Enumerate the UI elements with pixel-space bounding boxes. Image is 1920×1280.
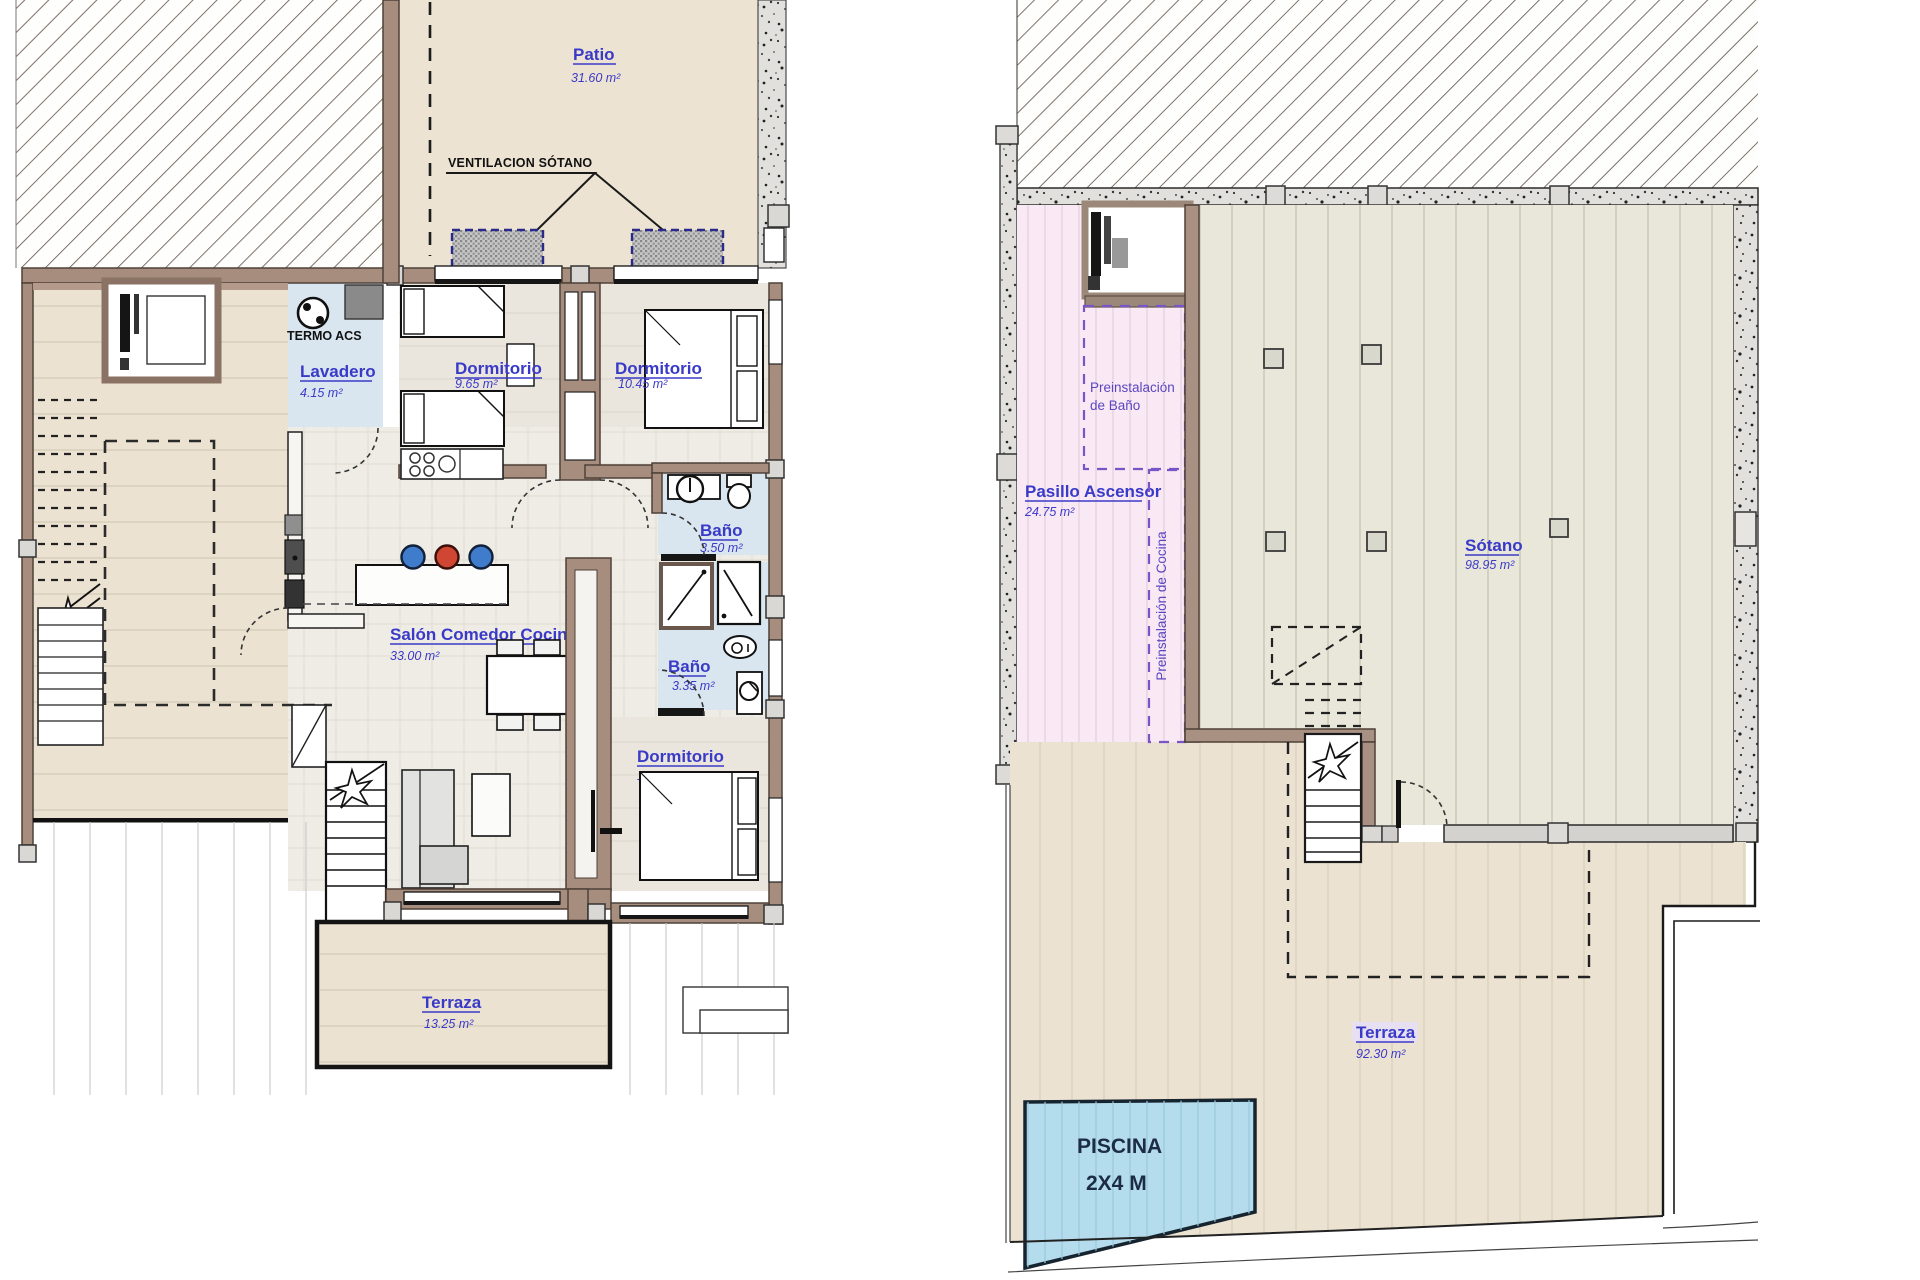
svg-text:13.25 m²: 13.25 m²: [424, 1017, 474, 1031]
svg-text:3.35 m²: 3.35 m²: [672, 679, 715, 693]
svg-text:de Baño: de Baño: [1090, 398, 1140, 413]
svg-text:Dormitorio: Dormitorio: [615, 359, 702, 378]
svg-text:3.50 m²: 3.50 m²: [700, 541, 743, 555]
svg-text:31.60 m²: 31.60 m²: [571, 71, 621, 85]
svg-text:2X4 M: 2X4 M: [1086, 1172, 1147, 1195]
svg-text:4.15 m²: 4.15 m²: [300, 386, 343, 400]
svg-text:33.00 m²: 33.00 m²: [390, 649, 440, 663]
svg-text:Lavadero: Lavadero: [300, 362, 376, 381]
svg-text:Terraza: Terraza: [1356, 1023, 1416, 1042]
svg-text:Dormitorio: Dormitorio: [455, 359, 542, 378]
svg-text:Dormitorio: Dormitorio: [637, 747, 724, 766]
svg-text:Terraza: Terraza: [422, 993, 482, 1012]
svg-text:10.45 m²: 10.45 m²: [618, 377, 668, 391]
svg-text:VENTILACION SÓTANO: VENTILACION SÓTANO: [448, 155, 592, 170]
svg-text:Sótano: Sótano: [1465, 536, 1523, 555]
svg-text:Preinstalación: Preinstalación: [1090, 380, 1175, 395]
svg-text:Pasillo Ascensor: Pasillo Ascensor: [1025, 482, 1162, 501]
svg-text:Baño: Baño: [700, 521, 743, 540]
svg-text:9.65 m²: 9.65 m²: [455, 377, 498, 391]
svg-text:TERMO ACS: TERMO ACS: [287, 329, 362, 343]
svg-text:24.75 m²: 24.75 m²: [1024, 505, 1075, 519]
svg-text:Patio: Patio: [573, 45, 615, 64]
svg-text:98.95 m²: 98.95 m²: [1465, 558, 1515, 572]
svg-text:92.30 m²: 92.30 m²: [1356, 1047, 1406, 1061]
svg-text:PISCINA: PISCINA: [1077, 1135, 1162, 1158]
svg-text:Preinstalación de Cocina: Preinstalación de Cocina: [1154, 531, 1169, 681]
